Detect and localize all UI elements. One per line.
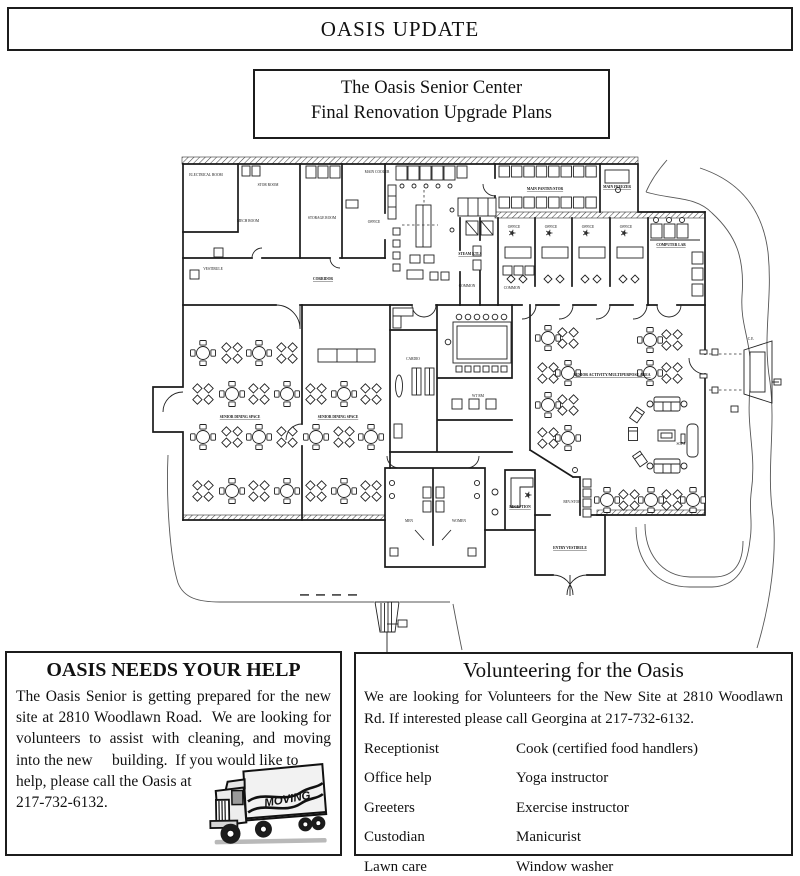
office-desk xyxy=(505,247,531,258)
room-label: COMPUTER LAB xyxy=(656,243,686,247)
dining-table xyxy=(639,488,664,513)
pantry-shelf xyxy=(586,166,597,177)
room-label: C.E. xyxy=(748,337,754,341)
room-label: BEV/STOR xyxy=(563,500,581,504)
dining-table xyxy=(538,428,558,448)
office-chair xyxy=(509,230,515,237)
room-label: SENIOR ACTIVITY/MULTIPURPOSE AREA xyxy=(573,373,650,377)
volunteer-role-right: Yoga instructor xyxy=(516,770,783,787)
office-chair xyxy=(621,230,627,237)
dining-table xyxy=(662,363,682,383)
oasis-help-box: OASIS NEEDS YOUR HELP The Oasis Senior i… xyxy=(5,651,342,856)
room-label: OFFICE xyxy=(545,225,558,229)
dining-table xyxy=(681,488,706,513)
room-label: SENIOR DINING SPACE xyxy=(220,415,261,419)
room-label: CARDIO xyxy=(406,357,420,361)
pantry-shelf xyxy=(586,197,597,208)
dining-table xyxy=(193,384,213,404)
room-label: MEN xyxy=(405,519,413,523)
dining-table xyxy=(222,427,242,447)
volunteer-role-right: Exercise instructor xyxy=(516,800,783,817)
dining-table xyxy=(220,479,245,504)
room-label: SOFA xyxy=(677,442,686,446)
dining-table xyxy=(191,341,216,366)
room-label: RECEPTION xyxy=(509,505,531,509)
volunteer-role-left: Receptionist xyxy=(364,741,516,758)
plan-title-line1: The Oasis Senior Center xyxy=(255,78,608,99)
room-label: MAIN COOLER xyxy=(365,170,390,174)
office-desk xyxy=(617,247,643,258)
dining-table xyxy=(275,479,300,504)
room-label: OFFICE xyxy=(620,225,633,229)
room-label: OFFICE xyxy=(508,225,521,229)
volunteer-role-right: Manicurist xyxy=(516,829,783,846)
pantry-shelf xyxy=(573,166,584,177)
room-label: ENTRY VESTIBULE xyxy=(553,546,587,550)
page-title: OASIS UPDATE xyxy=(9,9,791,42)
dining-table xyxy=(220,382,245,407)
room-label: MAIN PANTRY/STOR xyxy=(527,187,564,191)
guest-chair xyxy=(581,275,589,283)
volunteer-role-left: Greeters xyxy=(364,800,516,817)
buffet-counter xyxy=(318,349,375,362)
dining-table xyxy=(247,341,272,366)
room-label: ELECTRICAL ROOM xyxy=(189,173,223,177)
lounge-furniture xyxy=(573,397,699,517)
room-label: MAIN FREEZER xyxy=(603,185,631,189)
guest-chair xyxy=(507,275,515,283)
volunteer-role-left: Custodian xyxy=(364,829,516,846)
moving-truck-clipart: MOVING xyxy=(204,757,336,851)
dining-table xyxy=(306,384,326,404)
pantry-shelf xyxy=(549,166,560,177)
pantry-shelf xyxy=(573,197,584,208)
pantry-shelf xyxy=(511,197,522,208)
dining-table xyxy=(249,384,269,404)
hatched-walls xyxy=(182,157,705,520)
office-desk xyxy=(579,247,605,258)
room-label: WOMEN xyxy=(452,519,466,523)
dining-table xyxy=(332,479,357,504)
room-labels: ELECTRICAL ROOMSTOR ROOMMECH ROOMSTORAGE… xyxy=(189,170,754,550)
dining-table xyxy=(361,384,381,404)
guest-chair xyxy=(519,275,527,283)
pantry-shelf xyxy=(561,197,572,208)
room-label: MECH ROOM xyxy=(237,219,260,223)
pantry-shelf xyxy=(499,197,510,208)
office-furniture xyxy=(393,218,703,439)
room-label: STORAGE ROOM xyxy=(308,216,337,220)
dining-table xyxy=(536,326,561,351)
volunteer-box-title: Volunteering for the Oasis xyxy=(356,658,791,683)
dining-table xyxy=(638,361,663,386)
dining-table xyxy=(361,481,381,501)
volunteer-role-left: Office help xyxy=(364,770,516,787)
room-label: OFFICE xyxy=(368,220,381,224)
room-label: VESTIBULE xyxy=(203,267,223,271)
site-lines xyxy=(167,160,781,652)
dining-table xyxy=(662,330,682,350)
volunteer-role-left: Lawn care xyxy=(364,859,516,876)
floor-plan-drawing: ELECTRICAL ROOMSTOR ROOMMECH ROOMSTORAGE… xyxy=(0,140,800,652)
room-label: STEAM KTLS xyxy=(458,252,481,256)
volunteer-role-right: Window washer xyxy=(516,859,783,876)
guest-chair xyxy=(619,275,627,283)
kitchen-equipment xyxy=(190,166,629,280)
dining-table xyxy=(638,328,663,353)
room-label: STOR ROOM xyxy=(258,183,280,187)
dining-table xyxy=(306,481,326,501)
office-chair xyxy=(583,230,589,237)
guest-chair xyxy=(544,275,552,283)
pantry-shelf xyxy=(524,197,535,208)
pantry-shelf xyxy=(536,166,547,177)
plan-title-box: The Oasis Senior Center Final Renovation… xyxy=(253,69,610,139)
dining-table xyxy=(275,382,300,407)
dining-table xyxy=(556,361,581,386)
dining-tables xyxy=(191,326,706,513)
dining-table xyxy=(595,488,620,513)
pantry-shelf xyxy=(499,166,510,177)
help-box-title: OASIS NEEDS YOUR HELP xyxy=(7,659,340,682)
plan-title-line2: Final Renovation Upgrade Plans xyxy=(255,103,608,124)
room-label: COMMON xyxy=(504,286,521,290)
volunteer-roles-list: ReceptionistCook (certified food handler… xyxy=(364,741,783,876)
dining-table xyxy=(193,481,213,501)
guest-chair xyxy=(556,275,564,283)
restroom-fixtures xyxy=(389,478,533,556)
help-box-phone-line: help, please call the Oasis at 217-732-6… xyxy=(16,771,221,813)
volunteer-box-intro: We are looking for Volunteers for the Ne… xyxy=(364,687,783,731)
room-label: WT RM xyxy=(472,394,485,398)
dining-table xyxy=(222,343,242,363)
dining-table xyxy=(191,425,216,450)
office-chair xyxy=(546,230,552,237)
pantry-shelf xyxy=(561,166,572,177)
newsletter-header-box: OASIS UPDATE xyxy=(7,7,793,51)
pantry-shelf xyxy=(524,166,535,177)
volunteer-role-right: Cook (certified food handlers) xyxy=(516,741,783,758)
dining-table xyxy=(558,395,578,415)
dining-table xyxy=(662,490,682,510)
pantry-shelf xyxy=(536,197,547,208)
dining-table xyxy=(558,328,578,348)
guest-chair xyxy=(593,275,601,283)
room-label: SENIOR DINING SPACE xyxy=(318,415,359,419)
dining-table xyxy=(334,427,354,447)
office-desk xyxy=(542,247,568,258)
dining-table xyxy=(247,425,272,450)
guest-chair xyxy=(631,275,639,283)
dining-table xyxy=(304,425,329,450)
room-label: COMMON xyxy=(459,284,476,288)
dining-table xyxy=(619,490,639,510)
dining-table xyxy=(277,343,297,363)
building-walls xyxy=(153,164,705,575)
room-label: CORRIDOR xyxy=(313,277,333,281)
pantry-shelf xyxy=(511,166,522,177)
dining-table xyxy=(538,363,558,383)
dining-table xyxy=(556,426,581,451)
dining-table xyxy=(332,382,357,407)
door-swings xyxy=(163,184,707,596)
volunteer-box: Volunteering for the Oasis We are lookin… xyxy=(354,652,793,856)
dining-table xyxy=(359,425,384,450)
dining-table xyxy=(277,427,297,447)
dining-table xyxy=(249,481,269,501)
room-label: OFFICE xyxy=(582,225,595,229)
dining-table xyxy=(536,393,561,418)
pantry-shelf xyxy=(549,197,560,208)
